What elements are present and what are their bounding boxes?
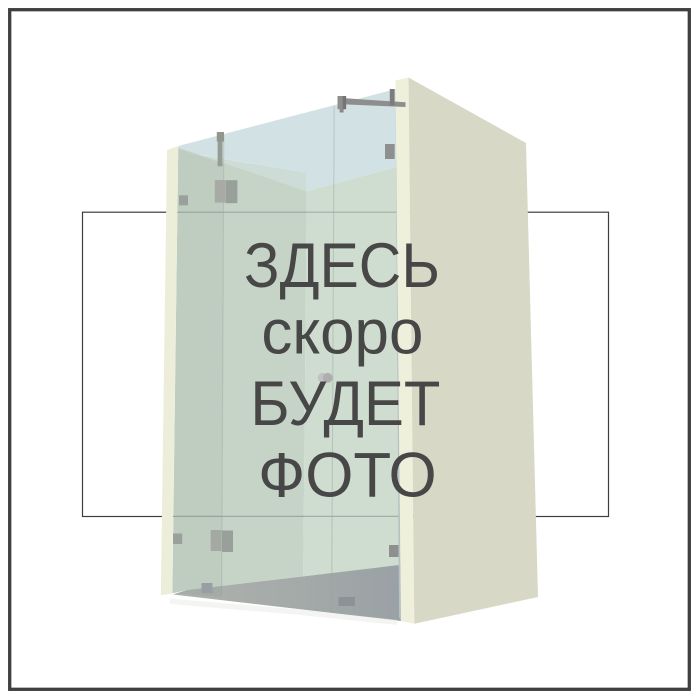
svg-text:БУДЕТ: БУДЕТ (250, 369, 440, 439)
svg-text:ЗДЕСЬ: ЗДЕСЬ (244, 231, 440, 301)
svg-text:ФОТО: ФОТО (258, 441, 437, 511)
svg-text:скоро: скоро (261, 298, 423, 368)
